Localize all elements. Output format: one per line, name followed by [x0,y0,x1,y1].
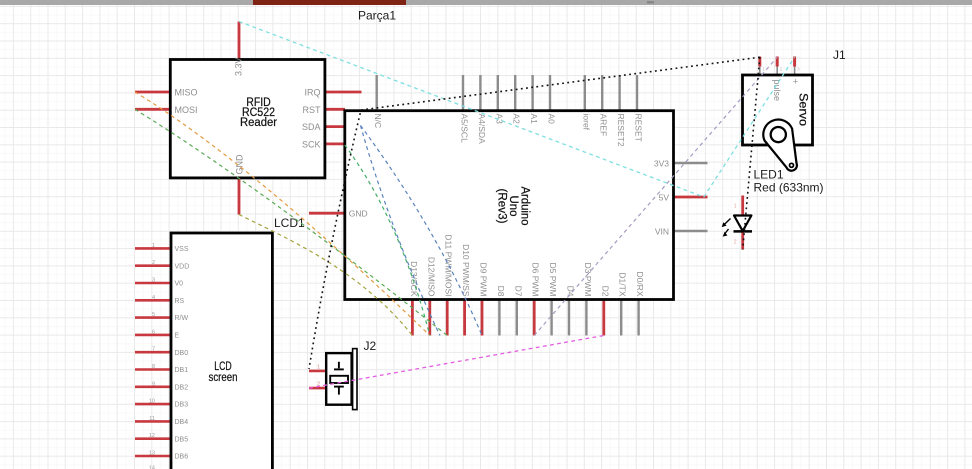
svg-text:DB1: DB1 [175,367,189,374]
svg-text:9: 9 [152,381,155,387]
svg-text:D9 PWM: D9 PWM [479,263,489,297]
svg-text:MOSI: MOSI [175,105,198,115]
svg-text:Uno: Uno [507,195,519,216]
svg-text:14: 14 [149,465,155,469]
svg-text:2: 2 [152,260,155,266]
svg-text:A1: A1 [529,114,539,125]
svg-text:E: E [175,333,180,340]
svg-text:7: 7 [152,347,155,353]
svg-text:12: 12 [149,433,155,439]
svg-text:LCD1: LCD1 [274,216,305,230]
svg-text:AREF: AREF [599,114,609,137]
svg-text:D12/MISO: D12/MISO [426,257,436,297]
svg-text:4: 4 [152,295,155,301]
svg-text:GND: GND [235,154,245,175]
svg-text:11: 11 [149,416,155,422]
svg-text:(Rev3): (Rev3) [496,189,508,224]
svg-text:screen: screen [209,372,238,384]
svg-text:DB0: DB0 [175,350,189,357]
svg-text:A5/SCL: A5/SCL [460,114,470,144]
svg-text:RST: RST [303,105,322,115]
svg-text:6: 6 [152,329,155,335]
svg-text:SCK: SCK [302,139,321,149]
svg-text:ioref: ioref [581,114,591,131]
svg-text:V0: V0 [175,281,184,288]
svg-text:D3 PWM: D3 PWM [583,263,593,297]
svg-text:5: 5 [152,312,155,318]
svg-text:D11 PWM/MOSI: D11 PWM/MOSI [444,234,454,296]
svg-text:DB2: DB2 [175,384,189,391]
svg-text:Reader: Reader [240,117,277,129]
svg-text:A0: A0 [547,114,557,125]
svg-text:DB6: DB6 [175,454,189,461]
svg-text:2: 2 [734,240,737,246]
svg-text:RESET2: RESET2 [616,114,626,147]
svg-text:Arduino: Arduino [519,187,531,226]
svg-text:DB5: DB5 [175,436,189,443]
svg-text:VIN: VIN [655,227,669,237]
svg-text:+: + [793,77,798,87]
svg-text:Parça1: Parça1 [358,9,396,23]
svg-text:VSS: VSS [175,246,189,253]
svg-text:D6 PWM: D6 PWM [531,263,541,297]
svg-text:DB4: DB4 [175,419,189,426]
svg-text:N/C: N/C [373,114,383,129]
svg-text:Servo: Servo [797,93,809,126]
svg-text:D8: D8 [496,286,506,297]
svg-text:3: 3 [152,278,155,284]
svg-text:1: 1 [317,365,320,371]
svg-text:pulse: pulse [772,80,782,102]
svg-text:10: 10 [149,399,155,405]
svg-text:A2: A2 [512,114,522,125]
svg-text:RS: RS [175,298,185,305]
svg-text:J2: J2 [364,339,377,353]
svg-text:J1: J1 [833,48,846,62]
svg-text:MISO: MISO [175,88,198,98]
svg-text:R/W: R/W [175,315,189,322]
svg-text:LED1: LED1 [754,168,784,182]
svg-text:1: 1 [152,243,155,249]
svg-text:3V3: 3V3 [654,159,669,169]
svg-text:Red (633nm): Red (633nm) [754,181,824,195]
svg-text:D1/TX: D1/TX [618,272,628,296]
svg-text:VDD: VDD [175,263,190,270]
svg-text:13: 13 [149,451,155,457]
svg-text:D5 PWM: D5 PWM [548,263,558,297]
svg-text:D4: D4 [566,286,576,297]
svg-text:5V: 5V [659,193,670,203]
svg-text:DB3: DB3 [175,402,189,409]
svg-text:D7: D7 [513,286,523,297]
svg-text:D13/SCK: D13/SCK [409,261,419,297]
svg-text:D10 PWM/SS: D10 PWM/SS [461,244,471,297]
svg-text:1: 1 [734,204,737,210]
svg-text:A4/SDA: A4/SDA [477,114,487,145]
svg-text:D2: D2 [600,286,610,297]
svg-text:SDA: SDA [302,122,321,132]
svg-text:D0/RX: D0/RX [635,271,645,296]
svg-text:GND: GND [349,209,368,219]
svg-text:3.3V: 3.3V [234,57,244,76]
svg-text:8: 8 [152,364,155,370]
svg-text:IRQ: IRQ [304,88,320,98]
svg-text:RESET: RESET [634,114,644,142]
